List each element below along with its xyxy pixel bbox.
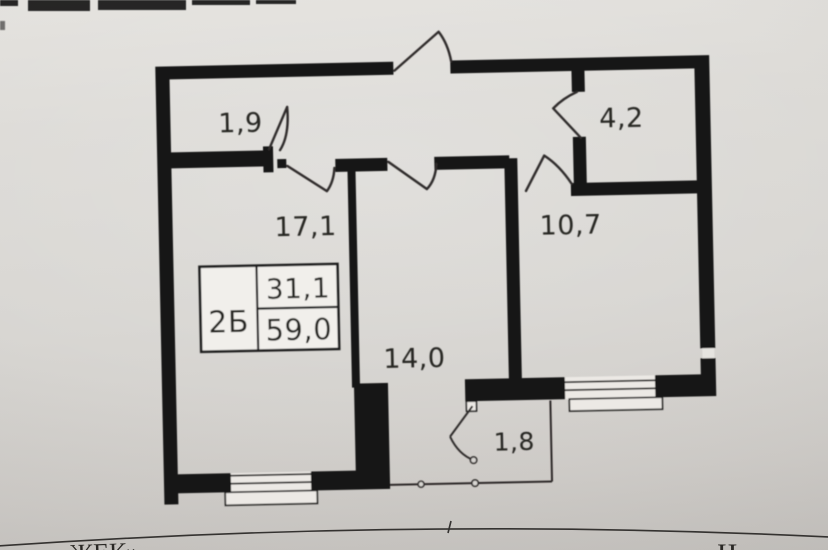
wall-storage-bottom	[171, 150, 265, 168]
wall-hall-living-a	[335, 158, 387, 172]
door-kitchen	[388, 161, 437, 190]
floorplan-photo: 2Б 31,1 59,0 1,9 4,2 17,1 10,7 14,0 1,8 …	[0, 0, 828, 550]
unit-table: 2Б 31,1 59,0	[199, 264, 339, 352]
balcony-railing	[390, 483, 476, 485]
wall-wardrobe-left	[573, 137, 587, 196]
door-wardrobe	[553, 92, 581, 139]
wall-vent-slot	[702, 348, 714, 358]
unit-label: 2Б	[208, 305, 249, 341]
unit-area-living: 31,1	[265, 271, 330, 305]
door-bedroom	[525, 155, 572, 191]
room-label-bedroom: 10,7	[539, 209, 602, 241]
wall-top-left	[155, 62, 393, 80]
wall-bedroom-top	[571, 180, 698, 196]
unit-area-total: 59,0	[265, 312, 332, 347]
room-label-living: 17,1	[274, 211, 337, 243]
doors	[267, 29, 582, 196]
wall-right-a	[694, 55, 715, 348]
adjacent-plan-fragments	[0, 0, 296, 30]
window-sill-bedroom	[569, 397, 662, 411]
wall-living-corner-block	[354, 383, 390, 490]
room-label-kitchen: 14,0	[383, 343, 446, 375]
page-text-bottom-left: ЖЕК»	[69, 537, 140, 550]
door-entry	[394, 32, 452, 71]
windows	[222, 348, 717, 505]
window-sill-living	[225, 490, 317, 505]
wall-hall-jamb	[277, 159, 286, 168]
window-bedroom	[565, 375, 663, 411]
floorplan-drawing: 2Б 31,1 59,0 1,9 4,2 17,1 10,7 14,0 1,8 …	[0, 0, 828, 550]
door-storage	[268, 107, 288, 150]
room-label-balcony: 1,8	[493, 427, 535, 457]
wall-bottom-right-b	[655, 374, 716, 397]
room-label-storage: 1,9	[218, 107, 263, 139]
wall-bottom-left-a	[164, 473, 231, 493]
page-curve-tick	[448, 521, 451, 533]
page-text-bottom-right: «Чи	[703, 538, 754, 550]
room-label-wardrobe: 4,2	[599, 102, 644, 134]
wall-living-kitchen-divider	[347, 162, 360, 388]
door-living-room	[287, 165, 335, 192]
window-living-room	[225, 471, 318, 505]
wall-kitchen-bedroom-divider	[504, 158, 522, 400]
wall-wardrobe-left-stub	[571, 67, 585, 92]
wall-left	[155, 66, 178, 504]
page-edge: ЖЕК» «Чи	[0, 521, 828, 550]
balcony-door-leaf	[449, 406, 473, 460]
wall-hall-living-b	[434, 155, 509, 170]
